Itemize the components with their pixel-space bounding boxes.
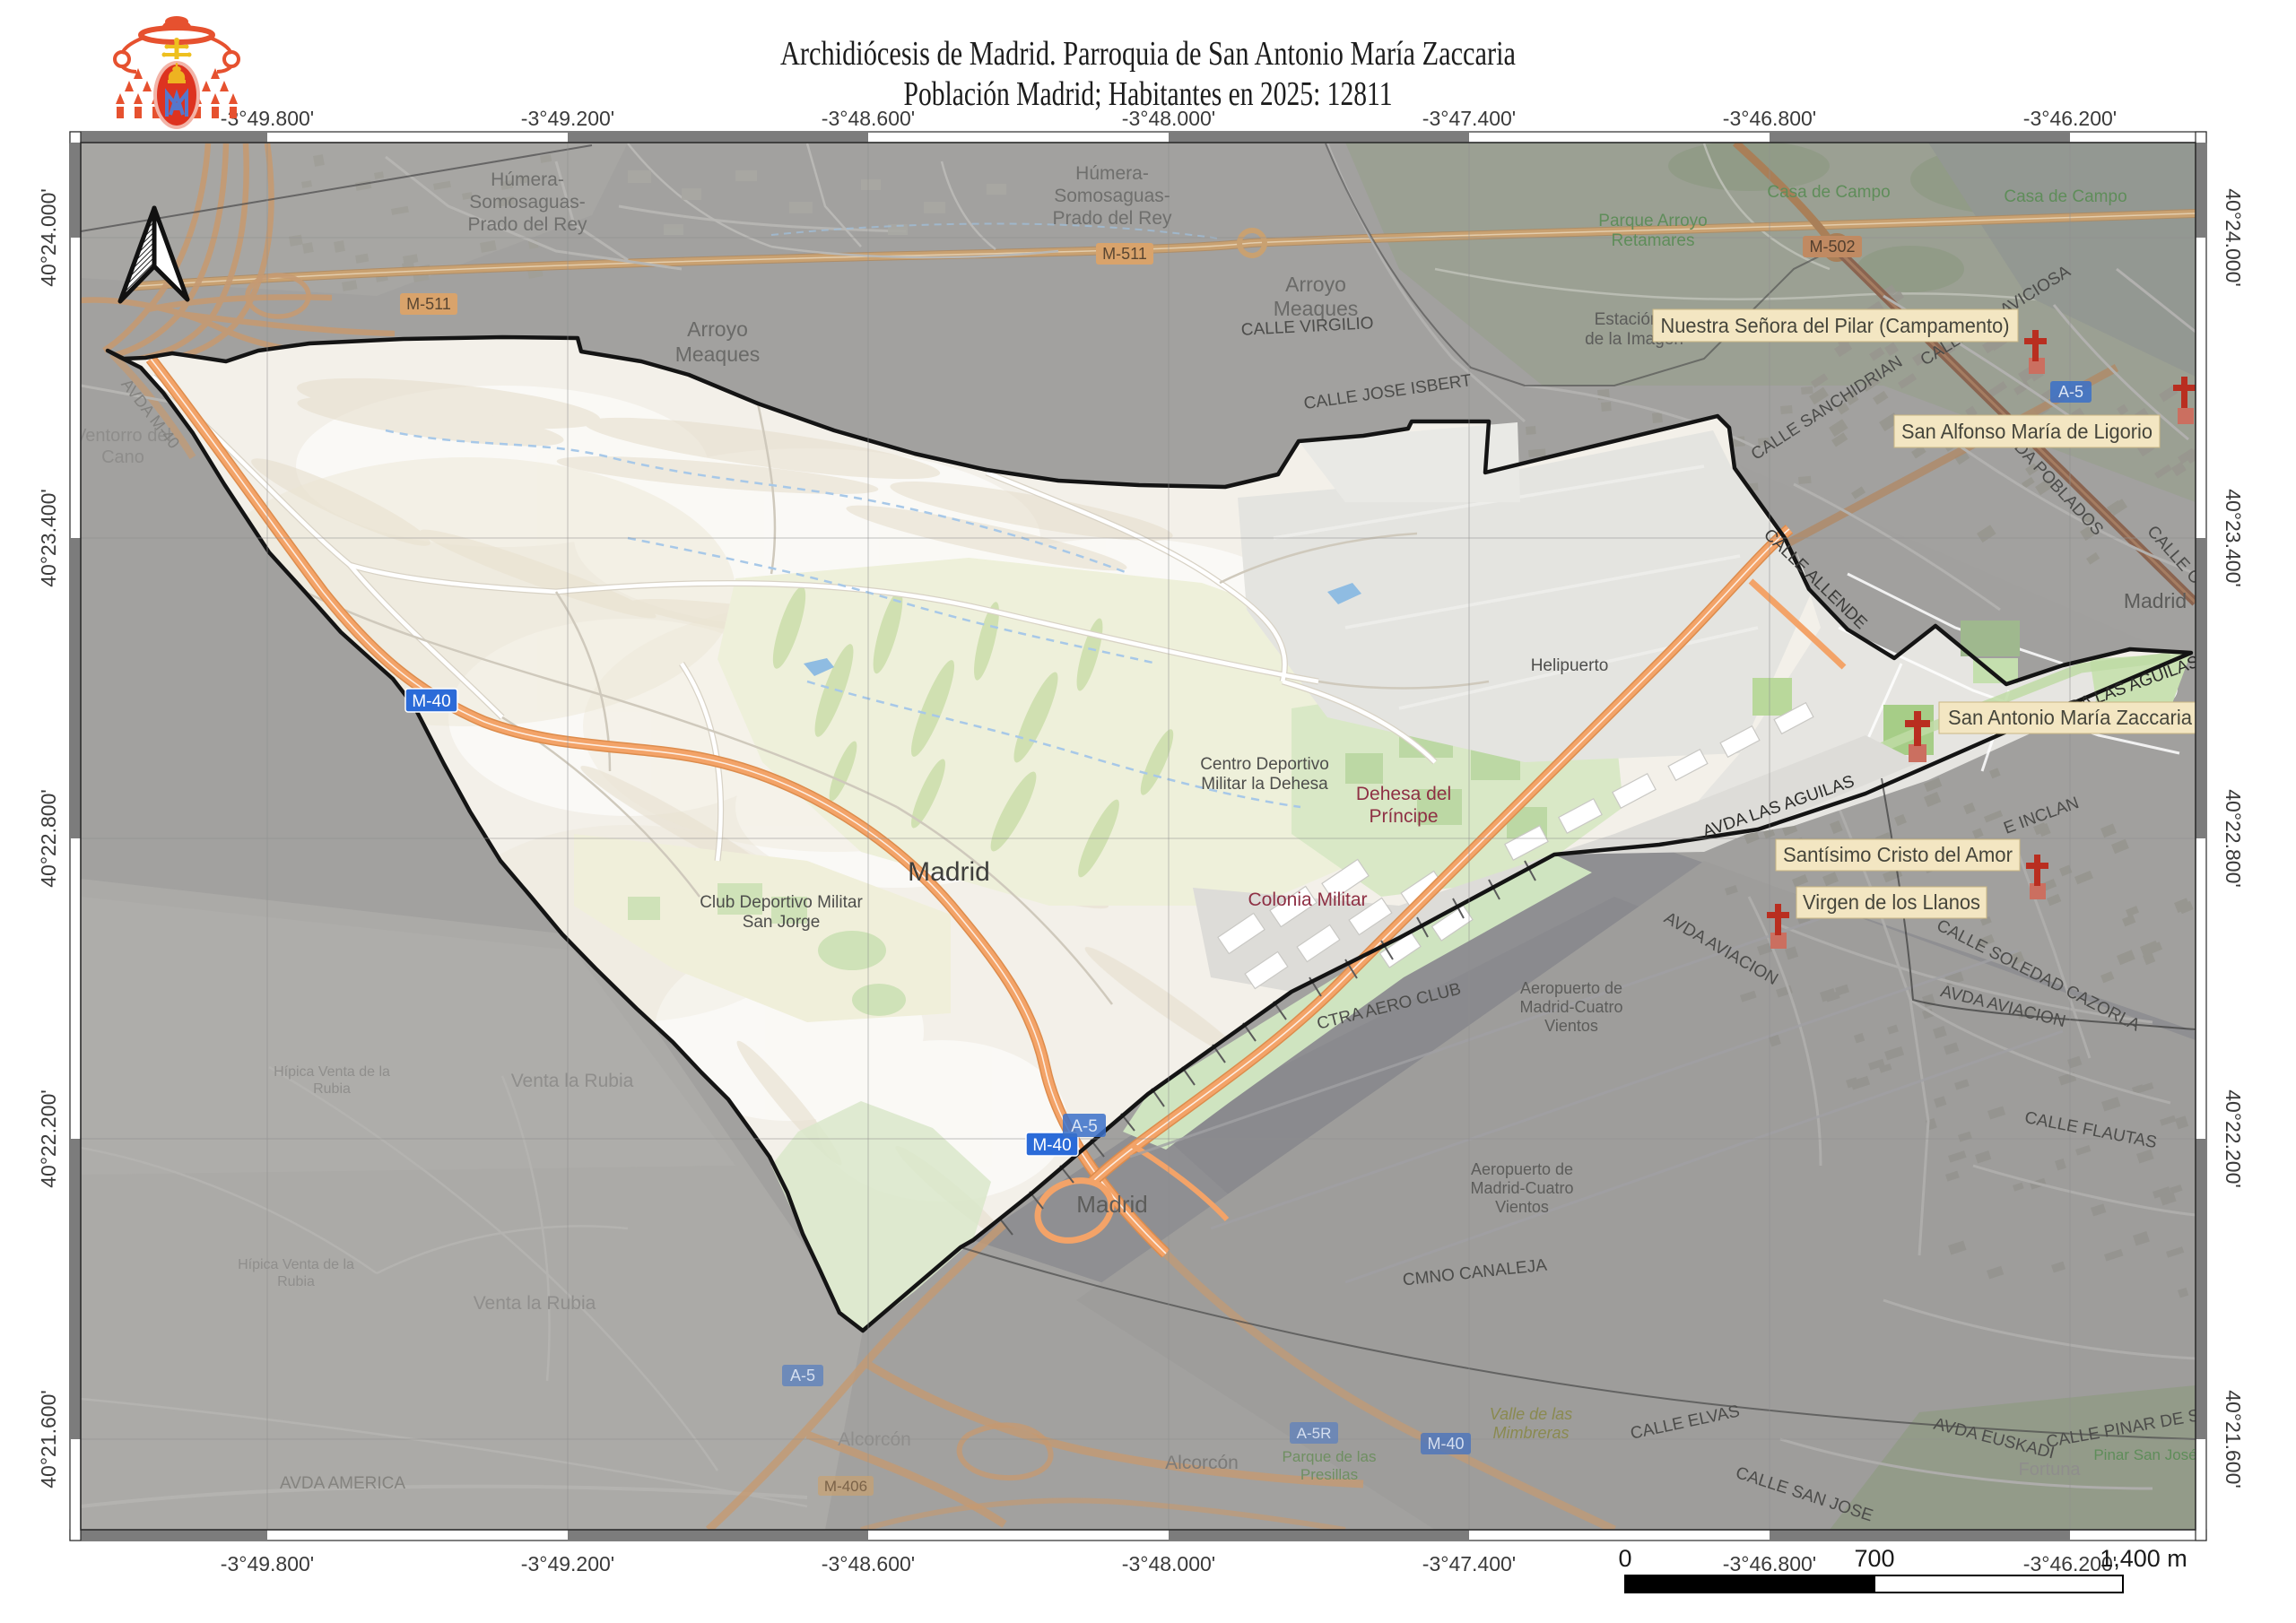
svg-text:Húmera-: Húmera-: [491, 169, 564, 190]
svg-text:Parque de las: Parque de las: [1283, 1448, 1377, 1465]
svg-text:AVDA AMERICA: AVDA AMERICA: [280, 1474, 405, 1493]
svg-text:Helipuerto: Helipuerto: [1531, 656, 1609, 675]
svg-text:Madrid: Madrid: [908, 857, 990, 887]
svg-text:Hípica Venta de la: Hípica Venta de la: [274, 1064, 390, 1080]
svg-text:M-502: M-502: [1809, 238, 1855, 256]
svg-text:Arroyo: Arroyo: [687, 317, 748, 341]
svg-text:Somosaguas-: Somosaguas-: [469, 192, 586, 213]
svg-text:40°23.400': 40°23.400': [2222, 489, 2245, 587]
svg-text:0: 0: [1618, 1545, 1631, 1572]
svg-text:Dehesa del: Dehesa del: [1356, 784, 1451, 804]
svg-text:Madrid-Cuatro: Madrid-Cuatro: [1470, 1179, 1573, 1197]
svg-text:Centro Deportivo: Centro Deportivo: [1200, 755, 1329, 774]
svg-text:-3°46.200': -3°46.200': [2023, 107, 2117, 130]
svg-text:Cano: Cano: [101, 447, 144, 467]
svg-text:A-5: A-5: [790, 1367, 815, 1384]
svg-text:Aeropuerto de: Aeropuerto de: [1520, 979, 1622, 997]
svg-text:Venta la Rubia: Venta la Rubia: [511, 1071, 634, 1091]
svg-text:Arroyo: Arroyo: [1285, 273, 1346, 296]
svg-text:Húmera-: Húmera-: [1075, 163, 1149, 184]
svg-text:-3°47.400': -3°47.400': [1422, 107, 1516, 130]
svg-text:Parque Arroyo: Parque Arroyo: [1598, 212, 1707, 230]
svg-text:-3°48.000': -3°48.000': [1122, 107, 1215, 130]
svg-text:Alcorcón: Alcorcón: [838, 1429, 911, 1450]
svg-text:-3°48.600': -3°48.600': [822, 1552, 915, 1575]
svg-text:Presillas: Presillas: [1300, 1466, 1358, 1483]
svg-text:Príncipe: Príncipe: [1369, 806, 1438, 827]
svg-text:A-5: A-5: [2058, 383, 2083, 401]
svg-text:Madrid-Cuatro: Madrid-Cuatro: [1519, 998, 1622, 1016]
svg-text:-3°49.800': -3°49.800': [221, 1552, 314, 1575]
svg-text:M-40: M-40: [1427, 1435, 1464, 1453]
svg-text:Prado del Rey: Prado del Rey: [467, 214, 587, 235]
svg-text:Madrid: Madrid: [2124, 589, 2187, 612]
svg-text:Militar la Dehesa: Militar la Dehesa: [1201, 775, 1328, 794]
svg-text:Alcorcón: Alcorcón: [1165, 1453, 1239, 1473]
svg-text:Colonia Militar: Colonia Militar: [1248, 890, 1367, 910]
svg-text:-3°48.000': -3°48.000': [1122, 1552, 1215, 1575]
svg-text:Somosaguas-: Somosaguas-: [1054, 186, 1170, 206]
svg-text:-3°48.600': -3°48.600': [822, 107, 915, 130]
svg-text:Casa de Campo: Casa de Campo: [1767, 183, 1890, 202]
svg-text:Club Deportivo Militar: Club Deportivo Militar: [700, 893, 863, 912]
svg-text:Rubia: Rubia: [313, 1081, 351, 1097]
svg-text:M-40: M-40: [1032, 1136, 1071, 1155]
svg-text:M-511: M-511: [1102, 245, 1147, 263]
svg-text:San Jorge: San Jorge: [743, 913, 821, 932]
svg-text:M-406: M-406: [824, 1478, 867, 1495]
svg-text:40°22.800': 40°22.800': [37, 789, 60, 888]
svg-text:Virgen de los Llanos: Virgen de los Llanos: [1803, 890, 1980, 914]
svg-text:40°22.200': 40°22.200': [2222, 1089, 2245, 1188]
svg-text:40°24.000': 40°24.000': [2222, 188, 2245, 287]
svg-text:Mimbreras: Mimbreras: [1492, 1424, 1569, 1442]
svg-text:Valle de las: Valle de las: [1490, 1405, 1572, 1423]
svg-text:Santísimo Cristo del Amor: Santísimo Cristo del Amor: [1783, 843, 2013, 866]
svg-text:M-511: M-511: [406, 295, 451, 313]
svg-text:Vientos: Vientos: [1495, 1198, 1549, 1216]
svg-text:-3°47.400': -3°47.400': [1422, 1552, 1516, 1575]
svg-text:A-5: A-5: [1071, 1117, 1098, 1136]
svg-text:-3°49.200': -3°49.200': [521, 107, 614, 130]
svg-text:Vientos: Vientos: [1544, 1017, 1598, 1035]
svg-text:A-5R: A-5R: [1297, 1425, 1332, 1442]
svg-text:1,400 m: 1,400 m: [2100, 1545, 2187, 1572]
svg-text:-3°49.200': -3°49.200': [521, 1552, 614, 1575]
svg-text:Retamares: Retamares: [1612, 231, 1695, 250]
svg-text:700: 700: [1854, 1545, 1894, 1572]
svg-text:40°23.400': 40°23.400': [37, 489, 60, 587]
svg-text:40°22.200': 40°22.200': [37, 1089, 60, 1188]
svg-text:40°21.600': 40°21.600': [37, 1390, 60, 1488]
svg-text:Meaques: Meaques: [675, 343, 761, 366]
svg-text:Rubia: Rubia: [277, 1274, 315, 1289]
svg-text:40°22.800': 40°22.800': [2222, 789, 2245, 888]
svg-text:Aeropuerto de: Aeropuerto de: [1471, 1160, 1573, 1178]
svg-text:San Antonio María Zaccaria: San Antonio María Zaccaria: [1948, 706, 2192, 729]
svg-text:Pinar San José: Pinar San José: [2093, 1446, 2196, 1463]
svg-text:Fortuna: Fortuna: [2019, 1460, 2082, 1480]
svg-text:Archidiócesis de Madrid. Parro: Archidiócesis de Madrid. Parroquia de Sa…: [780, 35, 1516, 73]
svg-text:-3°46.800': -3°46.800': [1723, 1552, 1816, 1575]
svg-text:40°21.600': 40°21.600': [2222, 1390, 2245, 1488]
svg-text:Nuestra Señora del Pilar (Camp: Nuestra Señora del Pilar (Campamento): [1661, 314, 2010, 337]
svg-text:Madrid: Madrid: [1076, 1191, 1147, 1218]
svg-text:San Alfonso María de Ligorio: San Alfonso María de Ligorio: [1901, 420, 2152, 443]
svg-text:Casa de Campo: Casa de Campo: [2004, 187, 2126, 206]
svg-text:Venta la Rubia: Venta la Rubia: [474, 1293, 596, 1314]
svg-text:M-40: M-40: [412, 692, 450, 711]
svg-text:Prado del Rey: Prado del Rey: [1052, 208, 1172, 229]
svg-text:Hípica Venta de la: Hípica Venta de la: [238, 1257, 354, 1272]
svg-text:-3°46.800': -3°46.800': [1723, 107, 1816, 130]
svg-text:40°24.000': 40°24.000': [37, 188, 60, 287]
